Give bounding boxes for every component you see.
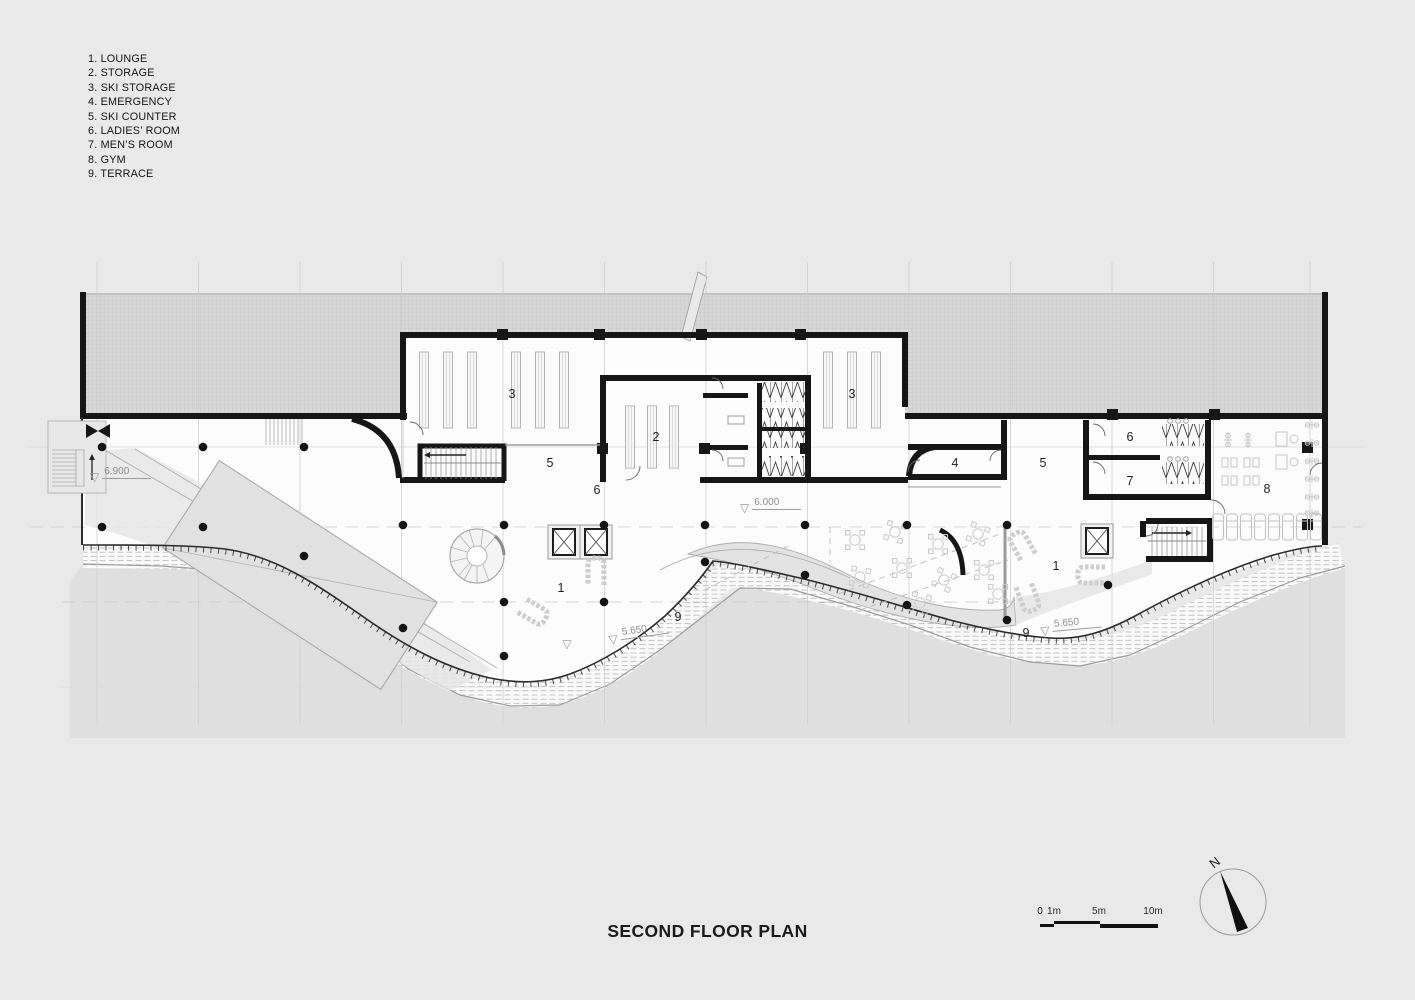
- compass-icon: [1196, 856, 1274, 942]
- stair-right: [1148, 527, 1206, 556]
- scale-label: 10m: [1143, 906, 1162, 917]
- scale-segment: [1040, 924, 1054, 927]
- scale-label: 1m: [1047, 906, 1061, 917]
- legend-item: 4. EMERGENCY: [88, 95, 180, 109]
- stair-exterior-left: [48, 421, 110, 493]
- legend-item: 5. SKI COUNTER: [88, 110, 180, 124]
- legend-item: 1. LOUNGE: [88, 52, 180, 66]
- legend-item: 3. SKI STORAGE: [88, 81, 180, 95]
- scale-label: 5m: [1092, 906, 1106, 917]
- legend-item: 2. STORAGE: [88, 66, 180, 80]
- scale-segment: [1100, 924, 1158, 928]
- legend-item: 9. TERRACE: [88, 167, 180, 181]
- north-arrow: N: [1196, 856, 1274, 942]
- legend-item: 7. MEN’S ROOM: [88, 138, 180, 152]
- legend-item: 8. GYM: [88, 153, 180, 167]
- scale-bar: 01m5m10m: [1040, 906, 1160, 930]
- legend-item: 6. LADIES’ ROOM: [88, 124, 180, 138]
- spiral-stair: [450, 529, 504, 583]
- floor-plan-drawing: [0, 0, 1415, 1000]
- scale-label: 0: [1037, 906, 1043, 917]
- floor-plan-sheet: 1. LOUNGE2. STORAGE3. SKI STORAGE4. EMER…: [0, 0, 1415, 1000]
- room-legend: 1. LOUNGE2. STORAGE3. SKI STORAGE4. EMER…: [88, 52, 180, 182]
- scale-segment: [1054, 921, 1100, 925]
